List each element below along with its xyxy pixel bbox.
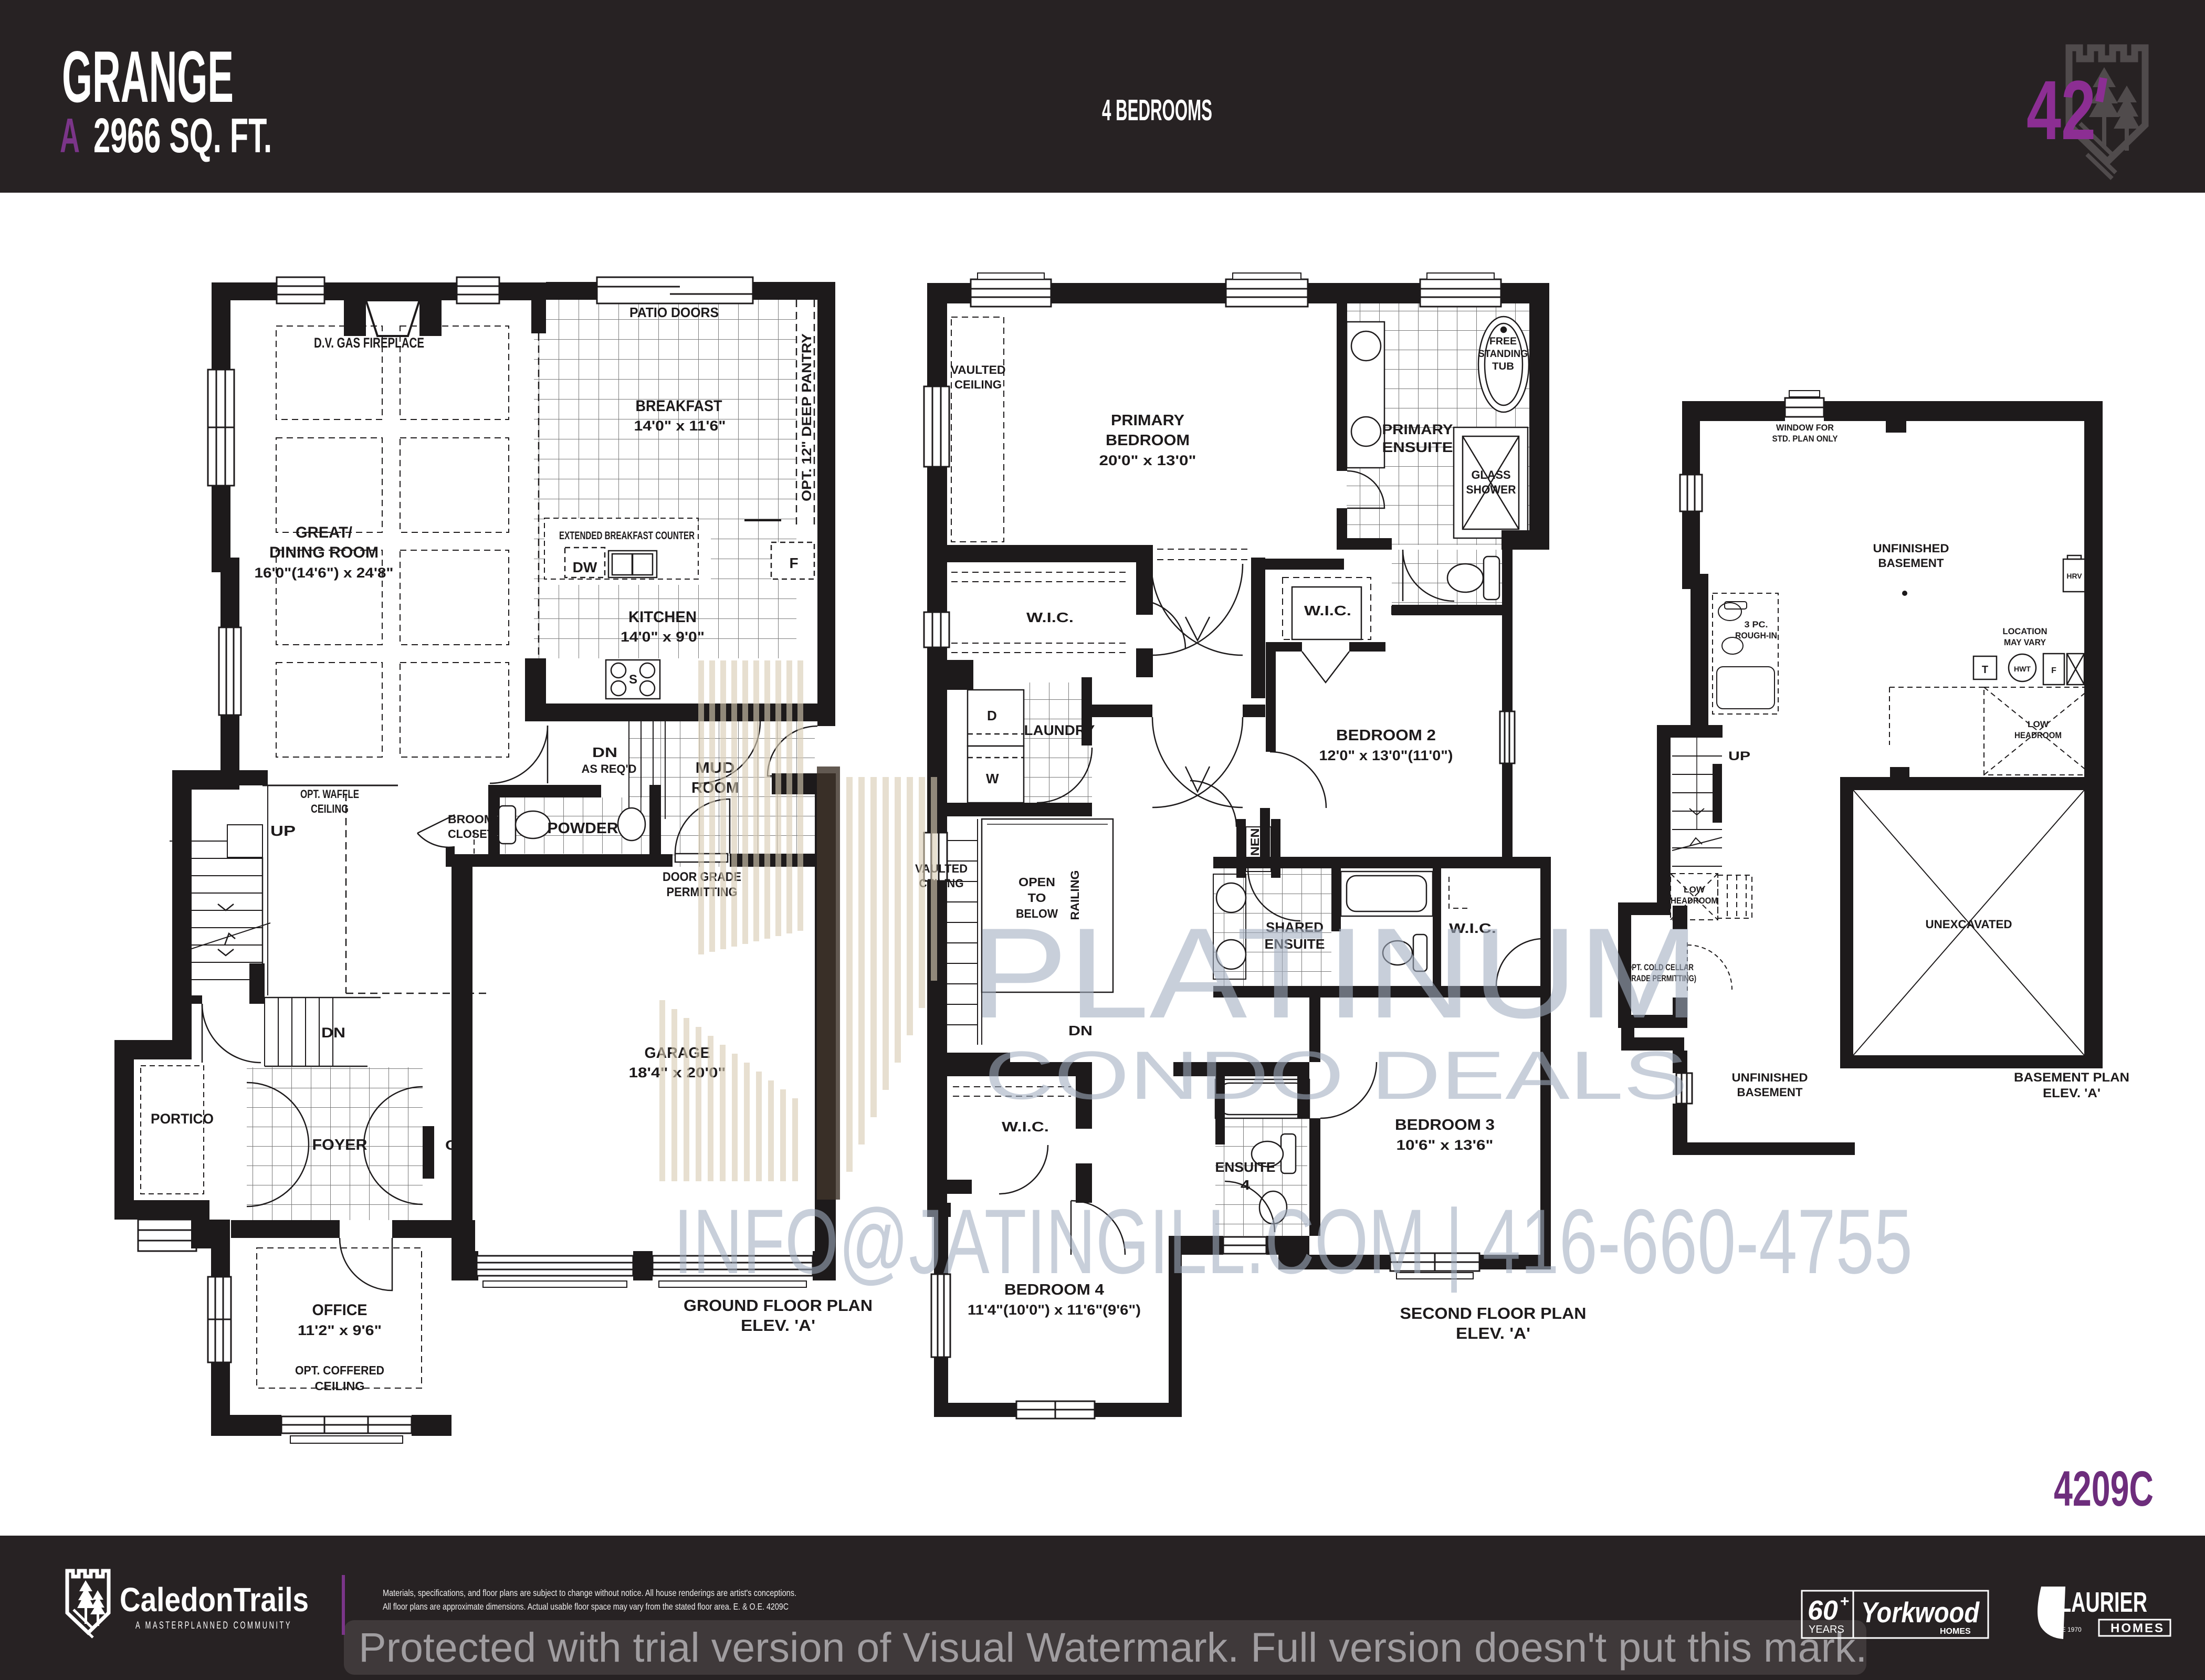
svg-text:HOMES: HOMES [2110, 1621, 2165, 1635]
svg-text:HOMES: HOMES [1940, 1627, 1971, 1636]
svg-text:SINCE 1970: SINCE 1970 [2046, 1626, 2082, 1633]
svg-text:All floor plans are approximat: All floor plans are approximate dimensio… [383, 1601, 789, 1612]
svg-text:Materials, specifications, and: Materials, specifications, and floor pla… [383, 1588, 796, 1598]
svg-text:CaledonTrails: CaledonTrails [120, 1581, 309, 1619]
svg-text:60: 60 [1808, 1595, 1838, 1626]
svg-text:Yorkwood: Yorkwood [1861, 1596, 1980, 1629]
svg-text:LAURIER: LAURIER [2059, 1587, 2147, 1618]
svg-text:+: + [1840, 1593, 1850, 1610]
svg-text:A MASTERPLANNED COMMUNITY: A MASTERPLANNED COMMUNITY [135, 1620, 292, 1631]
svg-text:YEARS: YEARS [1809, 1624, 1844, 1635]
